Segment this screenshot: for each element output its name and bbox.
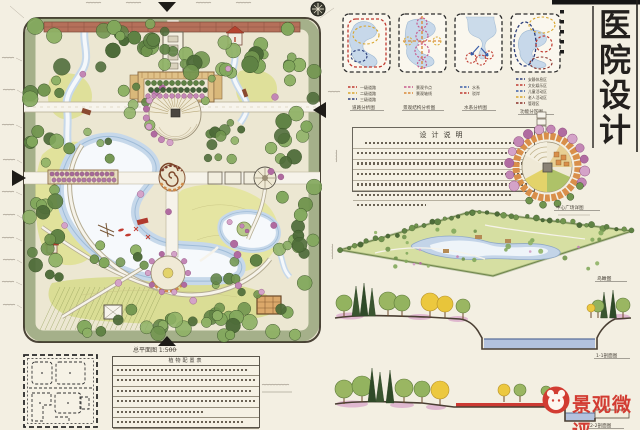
legend-label: 儿童活动区 — [528, 89, 547, 94]
watermark-logo-icon — [541, 385, 571, 415]
master-plan-drawing — [22, 15, 322, 345]
legend-label: 驳岸 — [472, 90, 480, 96]
table-row — [113, 369, 259, 377]
plan-label: 总平面图 1:500 — [133, 346, 176, 354]
legend-label: 景观轴线 — [416, 90, 432, 96]
table-row — [113, 390, 259, 398]
diagram-caption: 景观结构分析图 — [403, 104, 436, 111]
title-char-1: 医 — [599, 8, 631, 43]
table-row — [113, 411, 259, 419]
design-board: 总平面图 1:500 医 院 设 计 一级道路 二级道路 三级道路 道路分析图 — [0, 0, 640, 430]
legend-label: 二级道路 — [360, 90, 376, 96]
plaza-detail-plan: 中心广场详图 — [494, 110, 606, 218]
north-arrow-icon — [311, 2, 325, 16]
south-plaza — [151, 256, 185, 291]
title-char-2: 院 — [599, 43, 631, 78]
analysis-diagram-zones: 安静休息区 文化娱乐区 儿童活动区 老人活动区 管理区 功能分区图 — [508, 10, 564, 118]
legend-label: 老人活动区 — [528, 95, 547, 100]
axonometric-view: 鸟瞰图 — [335, 205, 635, 285]
legend-label: 水系 — [472, 84, 480, 90]
legend-label: 三级道路 — [360, 96, 376, 102]
legend-label: 一级道路 — [360, 84, 376, 90]
diagram-caption: 道路分析图 — [352, 104, 375, 111]
zoning-sketch — [22, 353, 100, 430]
table-row — [113, 379, 259, 387]
analysis-diagram-roads: 一级道路 二级道路 三级道路 道路分析图 — [340, 10, 394, 112]
analysis-diagram-water: 水系 驳岸 水系分析图 — [452, 10, 506, 112]
legend-label: 文化娱乐区 — [528, 83, 547, 88]
table-row — [113, 421, 259, 429]
diagram-caption: 水系分析图 — [464, 104, 487, 111]
plant-table-header: 植物配置表 — [113, 357, 259, 366]
watermark-text: 景观微评 — [572, 390, 640, 430]
legend-label: 安静休息区 — [528, 77, 547, 82]
analysis-diagram-structure: 景观节点 景观轴线 景观结构分析图 — [396, 10, 450, 112]
section-1: 1-1剖面图 — [332, 275, 634, 361]
plant-schedule-table: 植物配置表 — [112, 356, 260, 428]
title-char-3: 设 — [599, 78, 631, 113]
table-row — [113, 400, 259, 408]
legend-label: 管理区 — [528, 101, 540, 106]
legend-label: 景观节点 — [416, 84, 432, 90]
